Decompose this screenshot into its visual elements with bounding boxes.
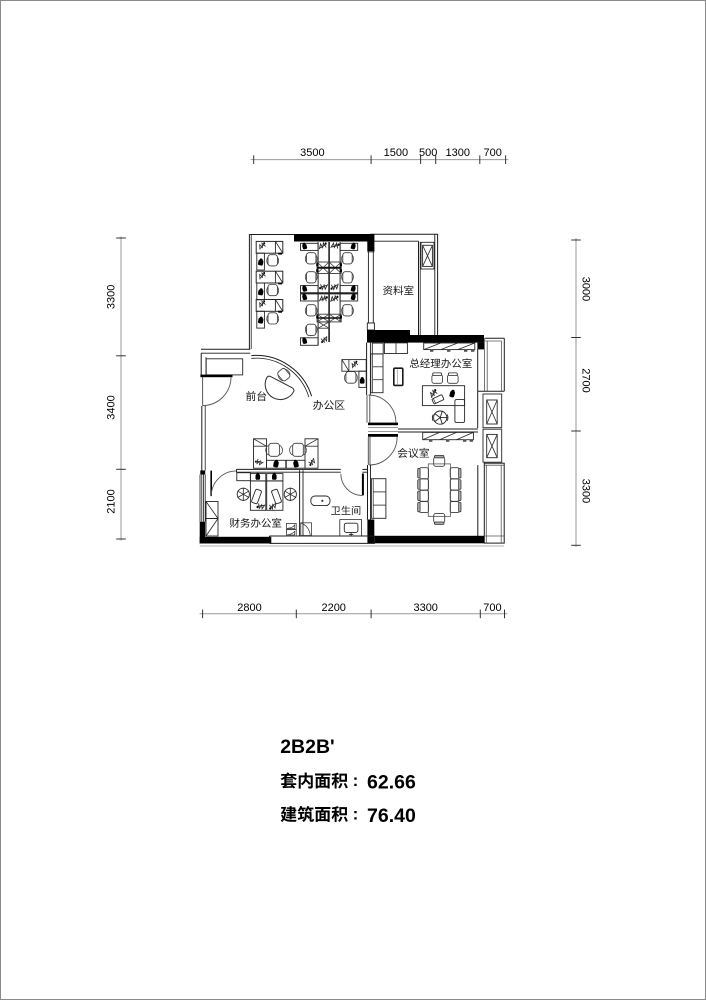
svg-text:3500: 3500 <box>300 147 324 159</box>
svg-text:2800: 2800 <box>237 602 261 614</box>
svg-text:3300: 3300 <box>580 479 592 503</box>
svg-text:62.66: 62.66 <box>367 772 416 794</box>
svg-text:700: 700 <box>484 147 502 159</box>
svg-text::: : <box>353 771 359 790</box>
svg-text:3400: 3400 <box>106 395 118 419</box>
svg-text:1500: 1500 <box>384 147 408 159</box>
svg-text:2700: 2700 <box>580 368 592 392</box>
svg-text:3000: 3000 <box>580 277 592 301</box>
svg-text:2200: 2200 <box>321 602 345 614</box>
svg-text:2100: 2100 <box>106 489 118 513</box>
svg-text:1300: 1300 <box>446 147 470 159</box>
svg-text::: : <box>353 805 359 824</box>
svg-text:76.40: 76.40 <box>367 805 416 827</box>
svg-text:500: 500 <box>419 147 437 159</box>
svg-text:3300: 3300 <box>413 602 437 614</box>
svg-text:2B2B': 2B2B' <box>280 736 335 758</box>
svg-text:700: 700 <box>483 602 501 614</box>
svg-text:3300: 3300 <box>106 285 118 309</box>
